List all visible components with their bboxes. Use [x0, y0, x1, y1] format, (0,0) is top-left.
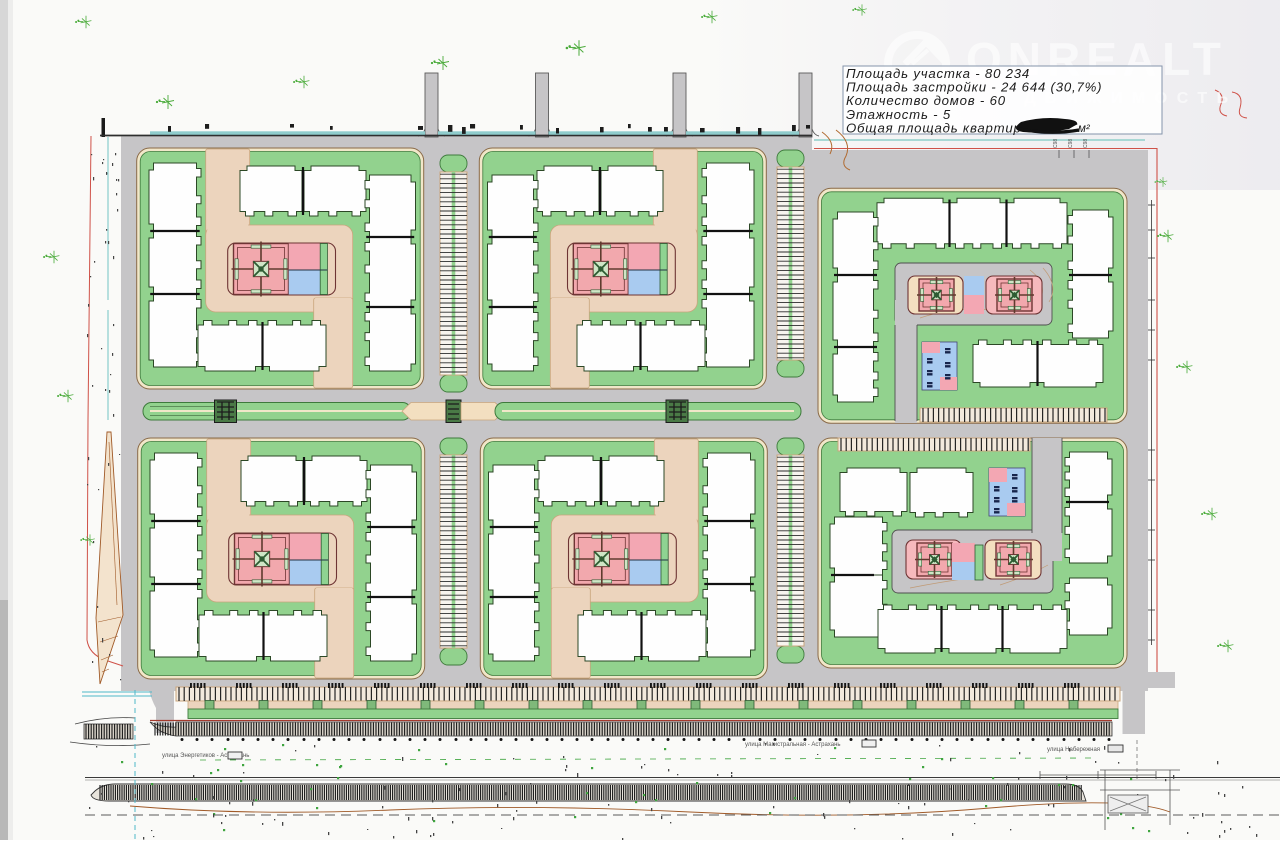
- svg-text:улица Магистральная - Астрахан: улица Магистральная - Астрахань: [745, 742, 841, 748]
- svg-text:C98: C98: [1053, 139, 1059, 148]
- svg-text:улица Набережная: улица Набережная: [1047, 747, 1100, 753]
- svg-text:C98: C98: [1083, 139, 1089, 148]
- svg-text:C98: C98: [1068, 139, 1074, 148]
- svg-text:Этажность - 5: Этажность - 5: [846, 107, 951, 122]
- svg-text:Общая площадь квартир: Общая площадь квартир: [846, 121, 1022, 136]
- svg-text:Количество домов - 60: Количество домов - 60: [846, 93, 1006, 108]
- svg-text:м²: м²: [1078, 123, 1091, 135]
